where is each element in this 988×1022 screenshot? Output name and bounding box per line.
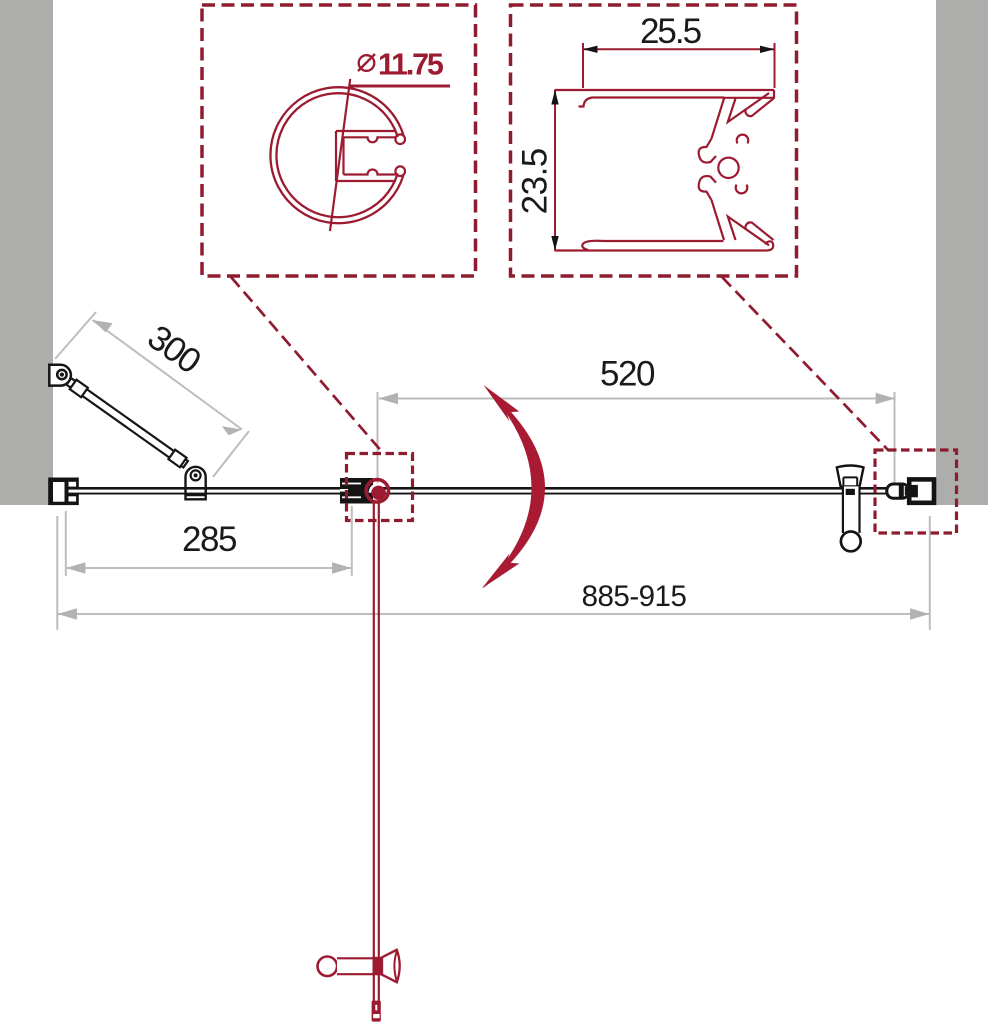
svg-text:11.75: 11.75 bbox=[378, 48, 444, 82]
svg-text:520: 520 bbox=[600, 355, 655, 394]
svg-text:285: 285 bbox=[182, 520, 236, 559]
svg-text:885-915: 885-915 bbox=[582, 580, 687, 613]
svg-text:25.5: 25.5 bbox=[640, 12, 701, 51]
svg-text:23.5: 23.5 bbox=[516, 148, 555, 214]
